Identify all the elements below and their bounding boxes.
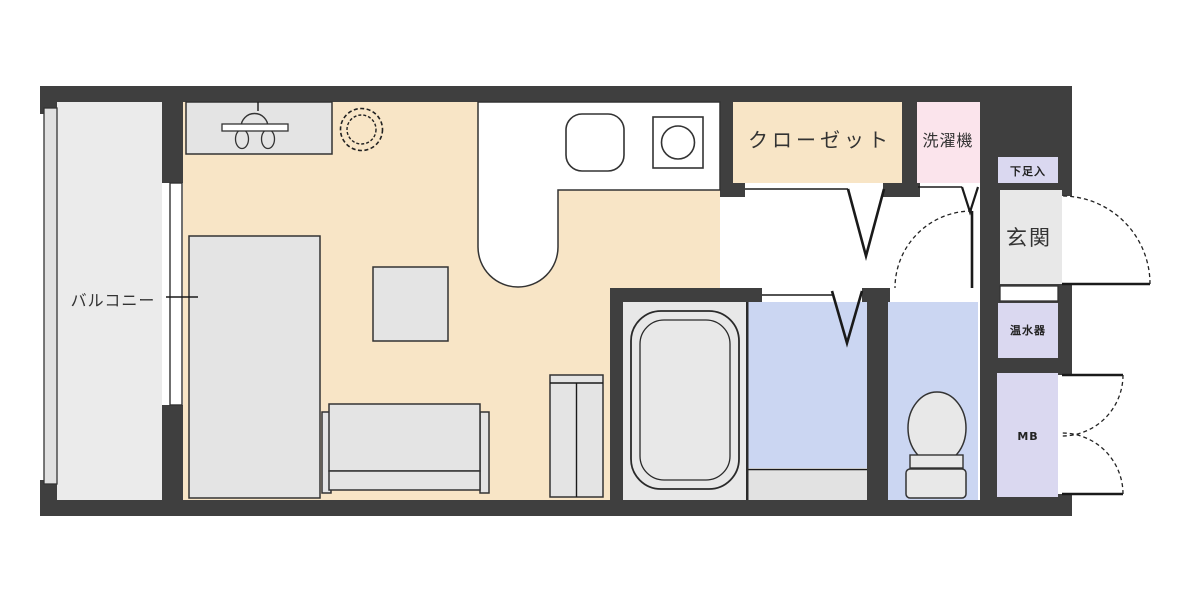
wall-balcony-bottom [162, 405, 183, 500]
toilet-icon [908, 392, 966, 464]
sliding-window-icon [170, 183, 182, 405]
faucet-leg-left-icon [236, 130, 249, 149]
wall-closet-washer [902, 102, 917, 183]
mb-door-opening [1058, 375, 1072, 494]
toilet-seat-bar [910, 455, 963, 468]
water-heater-label: 温水器 [1010, 323, 1046, 337]
kitchen-sink-icon [566, 114, 624, 171]
bath-washroom-divider [746, 302, 749, 500]
wall-bath-top [610, 288, 762, 302]
vanity-counter [748, 470, 867, 500]
closet-label: クローゼット [748, 128, 892, 152]
balcony-label: バルコニー [71, 291, 156, 310]
balcony-rail-icon [44, 108, 57, 484]
bathtub-icon [631, 311, 739, 489]
sofa-seat [329, 404, 480, 471]
faucet-leg-right-icon [262, 130, 275, 149]
wall-left-bottom [40, 480, 57, 516]
wall-washer-corner [883, 183, 920, 197]
wall-top [40, 86, 1072, 102]
entrance-label: 玄関 [1006, 226, 1052, 250]
floor-plan-drawing: バルコニー クローゼット 洗濯機 下足入 玄関 温水器 MB [0, 0, 1200, 599]
sofa-front [329, 471, 480, 490]
closet-folding-door-icon [848, 189, 884, 256]
entrance-step [1000, 286, 1058, 301]
wall-balcony-top [162, 102, 183, 183]
meter-box-label: MB [1017, 430, 1038, 443]
stove-burner-icon [662, 126, 695, 159]
washer-folding-door-icon [962, 187, 978, 212]
front-door-swing-icon [1062, 196, 1150, 284]
low-table-icon [373, 267, 448, 341]
floor-plan: バルコニー クローゼット 洗濯機 下足入 玄関 温水器 MB [0, 0, 1200, 599]
wall-washroom-toilet [867, 288, 888, 500]
wall-kitchen-closet [720, 102, 733, 183]
washroom-floor [748, 302, 867, 468]
wall-bath-left [610, 288, 623, 500]
wall-bottom [40, 500, 1072, 516]
faucet-bar-icon [222, 124, 288, 131]
toilet-tank [906, 469, 966, 498]
bed-icon [189, 236, 320, 498]
toilet-door-swing-icon [895, 211, 972, 288]
washing-machine-label: 洗濯機 [922, 131, 973, 150]
shoe-cabinet-label: 下足入 [1010, 165, 1046, 178]
sofa-arm-right [480, 412, 489, 493]
